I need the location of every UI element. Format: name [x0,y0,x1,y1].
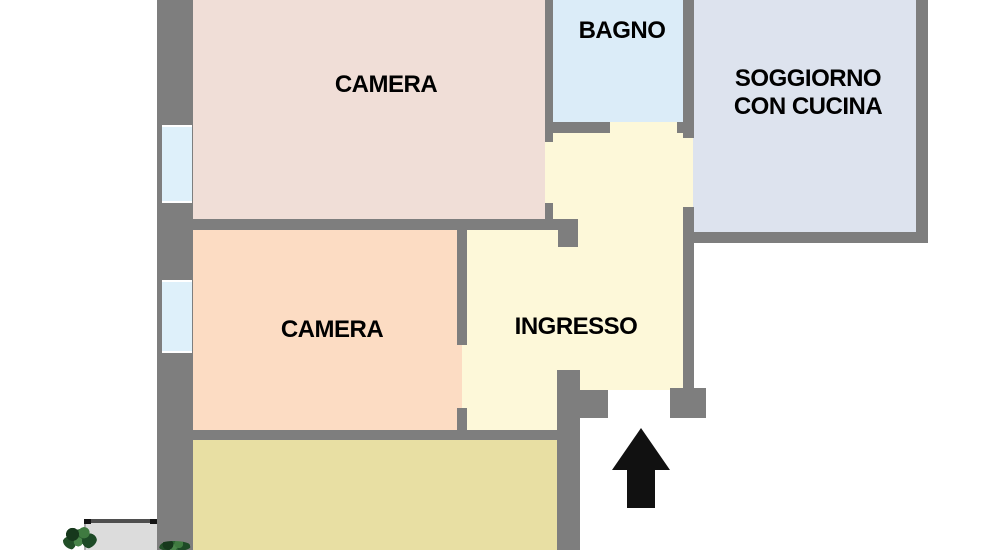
room-camera-top-fill [193,0,545,219]
wall-bagno-bottom [553,122,610,133]
room-utility-fill [193,430,557,550]
wall-entrance-jamb-right [670,388,706,418]
wall-stub-camera-top-right [545,203,553,219]
window-icon-upper [162,125,192,203]
room-soggiorno-fill [693,0,918,243]
window-icon-lower [162,280,192,353]
room-label-soggiorno: SOGGIORNO CON CUCINA [734,65,882,121]
wall-entrance-jamb-left [580,390,608,418]
wall-soggiorno-right [916,0,928,243]
room-label-camera-mid: CAMERA [281,316,383,344]
wall-entrance-pier [557,370,580,550]
wall-exterior-left [157,0,193,550]
balcony-rail-end-left [84,519,91,524]
room-label-soggiorno-line1: SOGGIORNO [734,65,882,93]
wall-block-ingresso-corner [558,230,578,247]
entrance-arrow-icon [612,428,670,508]
wall-bagno-left [545,0,553,142]
plant-icon-bottom-edge [159,541,191,550]
room-label-bagno: BAGNO [579,17,666,45]
wall-soggiorno-bottom [683,232,928,243]
wall-camera-divider [193,219,578,230]
wall-camera-mid-bottom [193,430,557,440]
wall-camera-mid-right-upper [457,228,467,345]
entrance-arrow-shape [612,428,670,508]
balcony-rail-end-right [150,519,157,524]
room-ingresso-fill-upper [545,122,693,390]
plant-icon [63,526,97,550]
room-label-camera-top: CAMERA [335,71,437,99]
wall-soggiorno-left-upper [683,0,694,138]
floor-plan: CAMERA BAGNO SOGGIORNO CON CUCINA CAMERA… [0,0,1000,550]
room-label-soggiorno-line2: CON CUCINA [734,93,882,121]
room-label-ingresso: INGRESSO [515,313,638,341]
wall-camera-mid-right-lower [457,408,467,432]
